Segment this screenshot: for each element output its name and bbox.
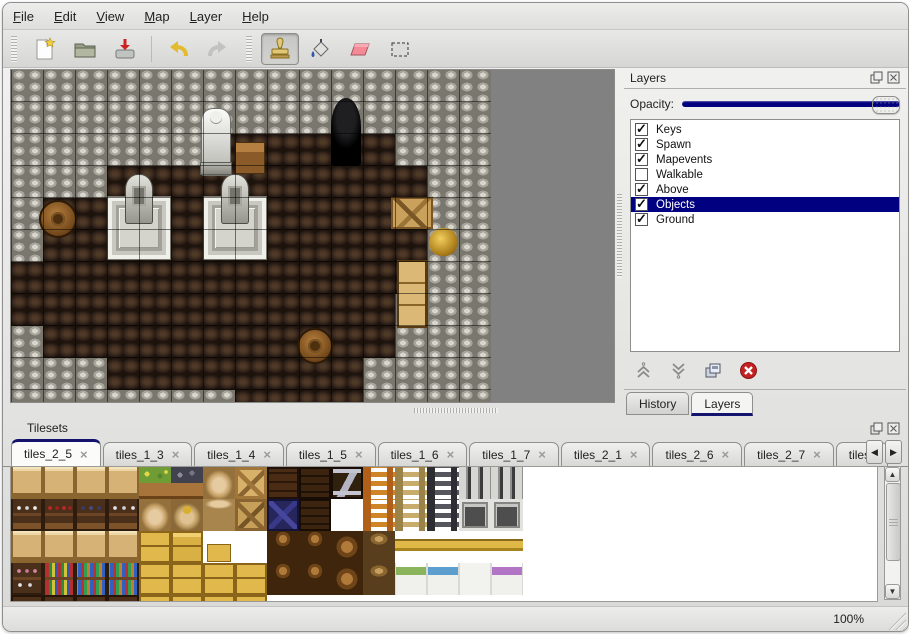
map-tile-floor[interactable]: [331, 198, 363, 230]
map-tile-floor[interactable]: [331, 390, 363, 402]
map-tile-floor[interactable]: [139, 358, 171, 390]
map-tile-floor[interactable]: [139, 326, 171, 358]
map-tile-floor[interactable]: [171, 230, 203, 262]
map-object-grave[interactable]: [221, 174, 249, 224]
map-tile-floor[interactable]: [75, 326, 107, 358]
map-tile-wall[interactable]: [299, 70, 331, 102]
float-panel-icon[interactable]: [870, 422, 883, 435]
map-object-cabinet[interactable]: [397, 260, 427, 328]
map-tile-floor[interactable]: [395, 230, 427, 262]
map-tile-floor[interactable]: [171, 326, 203, 358]
map-tile-wall[interactable]: [75, 390, 107, 402]
map-tile-wall[interactable]: [11, 326, 43, 358]
map-tile-wall[interactable]: [171, 390, 203, 402]
tileset-tile-empty[interactable]: [523, 467, 555, 499]
map-tile-wall[interactable]: [107, 102, 139, 134]
map-tile-floor[interactable]: [299, 390, 331, 402]
map-tile-wall[interactable]: [459, 262, 491, 294]
map-tile-floor[interactable]: [43, 262, 75, 294]
map-tile-wall[interactable]: [395, 390, 427, 402]
map-viewport[interactable]: [10, 69, 615, 403]
save-map-button[interactable]: [106, 33, 144, 65]
tileset-tile-shelfTop[interactable]: [43, 531, 75, 563]
tileset-tile-archDoor[interactable]: [459, 499, 491, 531]
tileset-scrollbar[interactable]: ▲ ▼: [884, 466, 901, 600]
tileset-tile-crateGold[interactable]: [171, 563, 203, 595]
tileset-tile-empty[interactable]: [331, 499, 363, 531]
map-tile-wall[interactable]: [363, 390, 395, 402]
tileset-tile-shelfDark[interactable]: [43, 595, 75, 602]
layer-visibility-checkbox[interactable]: [635, 213, 648, 226]
tileset-tile-crateGold[interactable]: [139, 595, 171, 602]
tileset-tab-tiles_1_7[interactable]: tiles_1_7×: [469, 442, 559, 466]
map-tile-wall[interactable]: [267, 70, 299, 102]
tileset-tile-darkShelf[interactable]: [299, 499, 331, 531]
map-tile-floor[interactable]: [171, 262, 203, 294]
map-object-amphora[interactable]: [429, 228, 457, 256]
map-object-barrel[interactable]: [297, 328, 333, 364]
tabs-scroll-right-button[interactable]: ▶: [885, 440, 902, 464]
tileset-tile-shelfBooks[interactable]: [43, 563, 75, 595]
map-tile-floor[interactable]: [75, 198, 107, 230]
map-object-barrel[interactable]: [39, 200, 77, 238]
map-tile-floor[interactable]: [331, 166, 363, 198]
layer-visibility-checkbox[interactable]: [635, 138, 648, 151]
map-tile-floor[interactable]: [267, 294, 299, 326]
map-tile-wall[interactable]: [427, 390, 459, 402]
map-tile-wall[interactable]: [459, 102, 491, 134]
tileset-tile-shelfTop[interactable]: [107, 467, 139, 499]
map-tile-floor[interactable]: [11, 262, 43, 294]
map-tile-wall[interactable]: [459, 198, 491, 230]
tileset-tab-tiles_1_4[interactable]: tiles_1_4×: [194, 442, 284, 466]
horizontal-splitter[interactable]: [3, 402, 908, 418]
tileset-tile-empty[interactable]: [427, 595, 459, 602]
menu-view[interactable]: View: [96, 9, 124, 24]
map-tile-wall[interactable]: [11, 390, 43, 402]
map-tile-floor[interactable]: [299, 230, 331, 262]
tileset-tile-empty[interactable]: [459, 595, 491, 602]
map-tile-wall[interactable]: [427, 262, 459, 294]
map-tile-floor[interactable]: [75, 294, 107, 326]
layer-visibility-checkbox[interactable]: [635, 123, 648, 136]
map-tile-wall[interactable]: [139, 102, 171, 134]
tileset-tile-empty[interactable]: [523, 595, 555, 602]
map-tile-floor[interactable]: [331, 326, 363, 358]
select-tool-button[interactable]: [381, 33, 419, 65]
tileset-tile-bedPurple[interactable]: [491, 563, 523, 595]
tileset-tile-ladderO[interactable]: [363, 499, 395, 531]
tileset-tile-empty[interactable]: [491, 595, 523, 602]
tab-close-icon[interactable]: ×: [538, 447, 546, 462]
tileset-tile-shelfBottles[interactable]: [75, 563, 107, 595]
tileset-tile-plantBox[interactable]: [139, 467, 171, 499]
map-tile-floor[interactable]: [299, 198, 331, 230]
map-tile-wall[interactable]: [43, 102, 75, 134]
float-panel-icon[interactable]: [870, 71, 883, 84]
tileset-tile-ladderT[interactable]: [395, 499, 427, 531]
map-tile-floor[interactable]: [267, 358, 299, 390]
tileset-tile-empty[interactable]: [523, 531, 555, 563]
map-tile-wall[interactable]: [11, 102, 43, 134]
tab-close-icon[interactable]: ×: [172, 447, 180, 462]
menu-file[interactable]: File: [13, 9, 34, 24]
map-tile-floor[interactable]: [331, 262, 363, 294]
map-tile-floor[interactable]: [267, 134, 299, 166]
tileset-tile-barrelPile[interactable]: [267, 531, 299, 563]
map-tile-wall[interactable]: [395, 358, 427, 390]
map-tile-floor[interactable]: [267, 390, 299, 402]
tileset-tile-crateGold[interactable]: [203, 595, 235, 602]
tileset-tab-tiles_2_1[interactable]: tiles_2_1×: [561, 442, 651, 466]
map-tile-floor[interactable]: [363, 294, 395, 326]
scrollbar-thumb[interactable]: [886, 483, 901, 561]
tileset-tile-empty[interactable]: [523, 499, 555, 531]
opacity-slider[interactable]: [682, 96, 900, 112]
tileset-tile-bedHead[interactable]: [491, 531, 523, 563]
layer-row-objects[interactable]: Objects: [631, 197, 899, 212]
close-panel-icon[interactable]: [887, 71, 900, 84]
open-map-button[interactable]: [66, 33, 104, 65]
map-tile-floor[interactable]: [299, 294, 331, 326]
raise-layer-button[interactable]: [634, 361, 653, 380]
map-tile-wall[interactable]: [171, 134, 203, 166]
map-tile-wall[interactable]: [363, 70, 395, 102]
map-tile-wall[interactable]: [171, 102, 203, 134]
tileset-tile-empty[interactable]: [363, 595, 395, 602]
layer-row-mapevents[interactable]: Mapevents: [631, 152, 899, 167]
tileset-tile-bedHead[interactable]: [395, 531, 427, 563]
map-tile-wall[interactable]: [171, 70, 203, 102]
map-tile-wall[interactable]: [43, 70, 75, 102]
close-panel-icon[interactable]: [887, 422, 900, 435]
map-tile-wall[interactable]: [235, 70, 267, 102]
menu-edit[interactable]: Edit: [54, 9, 76, 24]
map-tile-wall[interactable]: [139, 134, 171, 166]
tileset-tile-barrel[interactable]: [331, 531, 363, 563]
map-object-door[interactable]: [331, 98, 361, 166]
tileset-tile-empty[interactable]: [395, 595, 427, 602]
lower-layer-button[interactable]: [669, 361, 688, 380]
tileset-tile-crateX[interactable]: [235, 467, 267, 499]
map-tile-wall[interactable]: [363, 358, 395, 390]
new-map-button[interactable]: [26, 33, 64, 65]
tileset-tile-shelfTop[interactable]: [107, 531, 139, 563]
tileset-tile-archDoor[interactable]: [491, 499, 523, 531]
tileset-view[interactable]: [10, 466, 878, 602]
map-tile-floor[interactable]: [363, 326, 395, 358]
map-tile-wall[interactable]: [235, 102, 267, 134]
map-tile-floor[interactable]: [363, 134, 395, 166]
tileset-tile-crateX2[interactable]: [235, 499, 267, 531]
map-tile-wall[interactable]: [11, 134, 43, 166]
map-tile-wall[interactable]: [11, 358, 43, 390]
map-tile-floor[interactable]: [299, 134, 331, 166]
tileset-tile-shelfRed[interactable]: [43, 499, 75, 531]
map-tile-wall[interactable]: [427, 102, 459, 134]
tileset-tab-tiles_1_3[interactable]: tiles_1_3×: [103, 442, 193, 466]
map-tile-floor[interactable]: [11, 294, 43, 326]
map-tile-wall[interactable]: [459, 134, 491, 166]
tab-close-icon[interactable]: ×: [722, 447, 730, 462]
map-tile-wall[interactable]: [427, 166, 459, 198]
tileset-tile-shelfPink[interactable]: [11, 563, 43, 595]
tileset-tile-bedBlue[interactable]: [427, 563, 459, 595]
map-object-table[interactable]: [235, 142, 265, 174]
map-tile-wall[interactable]: [267, 102, 299, 134]
map-tile-floor[interactable]: [107, 294, 139, 326]
tileset-tab-tiles_2_5[interactable]: tiles_2_5×: [11, 439, 101, 466]
map-tile-wall[interactable]: [139, 390, 171, 402]
eraser-tool-button[interactable]: [341, 33, 379, 65]
tileset-tile-empty[interactable]: [523, 563, 555, 595]
tileset-tile-empty[interactable]: [235, 531, 267, 563]
map-tile-floor[interactable]: [363, 166, 395, 198]
map-tile-wall[interactable]: [395, 70, 427, 102]
map-tile-floor[interactable]: [331, 230, 363, 262]
tileset-tile-sackTall[interactable]: [203, 467, 235, 499]
map-tile-floor[interactable]: [171, 294, 203, 326]
layer-row-keys[interactable]: Keys: [631, 122, 899, 137]
tileset-tile-shelfDark[interactable]: [107, 595, 139, 602]
tileset-tab-tiles_1_6[interactable]: tiles_1_6×: [378, 442, 468, 466]
tileset-tile-potStack[interactable]: [363, 531, 395, 563]
map-tile-wall[interactable]: [107, 390, 139, 402]
vertical-splitter[interactable]: [614, 69, 624, 402]
map-object-grave[interactable]: [125, 174, 153, 224]
map-tile-wall[interactable]: [107, 70, 139, 102]
tileset-tile-ladderD[interactable]: [427, 499, 459, 531]
map-tile-floor[interactable]: [235, 326, 267, 358]
map-tile-wall[interactable]: [11, 166, 43, 198]
tileset-tile-potStack[interactable]: [363, 563, 395, 595]
map-tile-floor[interactable]: [363, 230, 395, 262]
tileset-tile-bedGreen[interactable]: [395, 563, 427, 595]
map-object-statue[interactable]: [201, 108, 231, 176]
map-tile-wall[interactable]: [427, 326, 459, 358]
map-tile-wall[interactable]: [75, 166, 107, 198]
map-tile-wall[interactable]: [459, 70, 491, 102]
map-tile-wall[interactable]: [11, 70, 43, 102]
map-tile-floor[interactable]: [299, 262, 331, 294]
tileset-tile-ladderD[interactable]: [427, 467, 459, 499]
tileset-tile-bedWhite[interactable]: [459, 563, 491, 595]
tileset-tile-crateGold[interactable]: [171, 595, 203, 602]
tileset-tile-sackStack[interactable]: [203, 499, 235, 531]
map-tile-wall[interactable]: [363, 102, 395, 134]
map-tile-floor[interactable]: [139, 262, 171, 294]
stamp-tool-button[interactable]: [261, 33, 299, 65]
fill-tool-button[interactable]: [301, 33, 339, 65]
delete-layer-button[interactable]: [739, 361, 758, 380]
tileset-tile-empty[interactable]: [299, 595, 331, 602]
tileset-tile-shelfTop[interactable]: [75, 467, 107, 499]
tileset-tile-archTop[interactable]: [459, 467, 491, 499]
menu-layer[interactable]: Layer: [190, 9, 223, 24]
layer-visibility-checkbox[interactable]: [635, 153, 648, 166]
tileset-tile-empty[interactable]: [267, 595, 299, 602]
map-tile-floor[interactable]: [171, 198, 203, 230]
map-tile-floor[interactable]: [235, 294, 267, 326]
map-tile-floor[interactable]: [139, 294, 171, 326]
map-tile-floor[interactable]: [75, 230, 107, 262]
map-tile-floor[interactable]: [171, 358, 203, 390]
map-object-crate[interactable]: [391, 197, 433, 229]
tileset-tab-tiles_2_6[interactable]: tiles_2_6×: [652, 442, 742, 466]
tileset-tile-bedHead[interactable]: [427, 531, 459, 563]
map-tile-wall[interactable]: [459, 358, 491, 390]
layer-row-above[interactable]: Above: [631, 182, 899, 197]
tileset-tile-shelfTop[interactable]: [11, 531, 43, 563]
undo-button[interactable]: [159, 33, 197, 65]
tileset-tab-tiles_1_5[interactable]: tiles_1_5×: [286, 442, 376, 466]
map-tile-floor[interactable]: [107, 262, 139, 294]
layer-row-ground[interactable]: Ground: [631, 212, 899, 227]
map-tile-floor[interactable]: [203, 294, 235, 326]
tileset-tile-crateGold[interactable]: [235, 595, 267, 602]
map-tile-floor[interactable]: [363, 262, 395, 294]
tileset-tile-shelfDark[interactable]: [75, 595, 107, 602]
tileset-tile-shelfJars[interactable]: [107, 499, 139, 531]
map-tile-wall[interactable]: [299, 102, 331, 134]
map-tile-floor[interactable]: [235, 390, 267, 402]
tileset-tile-darkShelf[interactable]: [299, 467, 331, 499]
map-tile-floor[interactable]: [107, 326, 139, 358]
map-tile-wall[interactable]: [75, 134, 107, 166]
layer-visibility-checkbox[interactable]: [635, 198, 648, 211]
duplicate-layer-button[interactable]: [704, 361, 723, 380]
map-tile-floor[interactable]: [203, 358, 235, 390]
map-tile-floor[interactable]: [267, 262, 299, 294]
redo-button[interactable]: [199, 33, 237, 65]
map-tile-floor[interactable]: [235, 262, 267, 294]
tileset-tile-shelfBottles[interactable]: [107, 563, 139, 595]
map-tile-floor[interactable]: [203, 262, 235, 294]
tileset-tile-shelfBlue[interactable]: [75, 499, 107, 531]
tileset-tile-archTop[interactable]: [491, 467, 523, 499]
tab-close-icon[interactable]: ×: [80, 447, 88, 462]
tab-close-icon[interactable]: ×: [355, 447, 363, 462]
tileset-tile-sackOpen[interactable]: [171, 499, 203, 531]
tileset-tile-shelfDark[interactable]: [11, 595, 43, 602]
tab-close-icon[interactable]: ×: [813, 447, 821, 462]
map-tile-floor[interactable]: [235, 358, 267, 390]
map-tile-wall[interactable]: [75, 358, 107, 390]
tileset-tile-bedHead[interactable]: [459, 531, 491, 563]
map-tile-wall[interactable]: [459, 326, 491, 358]
map-tile-wall[interactable]: [43, 134, 75, 166]
tab-close-icon[interactable]: ×: [447, 447, 455, 462]
tileset-tile-blueCrate[interactable]: [267, 499, 299, 531]
tileset-tile-crateGold[interactable]: [235, 563, 267, 595]
menu-help[interactable]: Help: [242, 9, 269, 24]
tileset-tile-sack[interactable]: [139, 499, 171, 531]
map-tile-floor[interactable]: [267, 230, 299, 262]
tileset-tile-barrel[interactable]: [331, 563, 363, 595]
map-tile-wall[interactable]: [11, 198, 43, 230]
map-tile-floor[interactable]: [331, 358, 363, 390]
map-tile-wall[interactable]: [427, 70, 459, 102]
map-tile-floor[interactable]: [171, 166, 203, 198]
map-tile-floor[interactable]: [267, 166, 299, 198]
map-tile-wall[interactable]: [459, 230, 491, 262]
map-tile-wall[interactable]: [395, 134, 427, 166]
tileset-tile-ladderT[interactable]: [395, 467, 427, 499]
map-tile-wall[interactable]: [43, 358, 75, 390]
map-tile-wall[interactable]: [395, 326, 427, 358]
map-tile-wall[interactable]: [43, 390, 75, 402]
tileset-tile-crateGold[interactable]: [139, 563, 171, 595]
map-tile-floor[interactable]: [43, 294, 75, 326]
map-tile-floor[interactable]: [395, 166, 427, 198]
tileset-tile-crateGoldTall[interactable]: [171, 531, 203, 563]
layer-visibility-checkbox[interactable]: [635, 183, 648, 196]
tileset-tile-metalZ[interactable]: [331, 467, 363, 499]
tileset-tile-barrelPile[interactable]: [299, 563, 331, 595]
map-tile-wall[interactable]: [107, 134, 139, 166]
tileset-tile-empty[interactable]: [331, 595, 363, 602]
tileset-tile-ladderO[interactable]: [363, 467, 395, 499]
tab-close-icon[interactable]: ×: [263, 447, 271, 462]
menu-map[interactable]: Map: [144, 9, 169, 24]
map-canvas[interactable]: [11, 70, 491, 402]
window-resize-grip[interactable]: [888, 612, 906, 630]
tileset-tab-tiles_2_7[interactable]: tiles_2_7×: [744, 442, 834, 466]
tileset-tile-crateGoldS[interactable]: [203, 531, 235, 563]
map-tile-floor[interactable]: [43, 326, 75, 358]
tileset-tile-oreBox[interactable]: [171, 467, 203, 499]
tileset-tile-shelfDish[interactable]: [11, 499, 43, 531]
map-tile-wall[interactable]: [75, 70, 107, 102]
tileset-tile-shelfTop[interactable]: [43, 467, 75, 499]
tileset-tile-barrelPile[interactable]: [267, 563, 299, 595]
tab-close-icon[interactable]: ×: [630, 447, 638, 462]
map-tile-floor[interactable]: [331, 294, 363, 326]
tileset-tile-shelfTop[interactable]: [75, 531, 107, 563]
map-tile-wall[interactable]: [395, 102, 427, 134]
scroll-down-button[interactable]: ▼: [885, 584, 900, 599]
map-tile-wall[interactable]: [75, 102, 107, 134]
scroll-up-button[interactable]: ▲: [885, 467, 900, 482]
map-tile-floor[interactable]: [267, 198, 299, 230]
map-tile-floor[interactable]: [107, 358, 139, 390]
map-tile-wall[interactable]: [459, 294, 491, 326]
layer-row-spawn[interactable]: Spawn: [631, 137, 899, 152]
toolbar-drag-handle[interactable]: [246, 36, 252, 62]
tabs-scroll-left-button[interactable]: ◀: [866, 440, 883, 464]
tileset-tile-crateGold[interactable]: [139, 531, 171, 563]
map-tile-wall[interactable]: [427, 294, 459, 326]
map-tile-wall[interactable]: [427, 134, 459, 166]
opacity-slider-handle[interactable]: [872, 96, 900, 114]
layer-visibility-checkbox[interactable]: [635, 168, 648, 181]
map-tile-wall[interactable]: [139, 70, 171, 102]
map-tile-floor[interactable]: [75, 262, 107, 294]
tileset-tile-shelfTop[interactable]: [11, 467, 43, 499]
map-tile-wall[interactable]: [427, 358, 459, 390]
map-tile-wall[interactable]: [203, 70, 235, 102]
map-tile-wall[interactable]: [459, 390, 491, 402]
tileset-tile-crateGold[interactable]: [203, 563, 235, 595]
map-tile-wall[interactable]: [43, 166, 75, 198]
toolbar-drag-handle[interactable]: [11, 36, 17, 62]
map-tile-floor[interactable]: [299, 166, 331, 198]
map-tile-floor[interactable]: [203, 326, 235, 358]
map-tile-wall[interactable]: [11, 230, 43, 262]
layer-row-walkable[interactable]: Walkable: [631, 167, 899, 182]
map-tile-wall[interactable]: [203, 390, 235, 402]
map-tile-floor[interactable]: [267, 326, 299, 358]
